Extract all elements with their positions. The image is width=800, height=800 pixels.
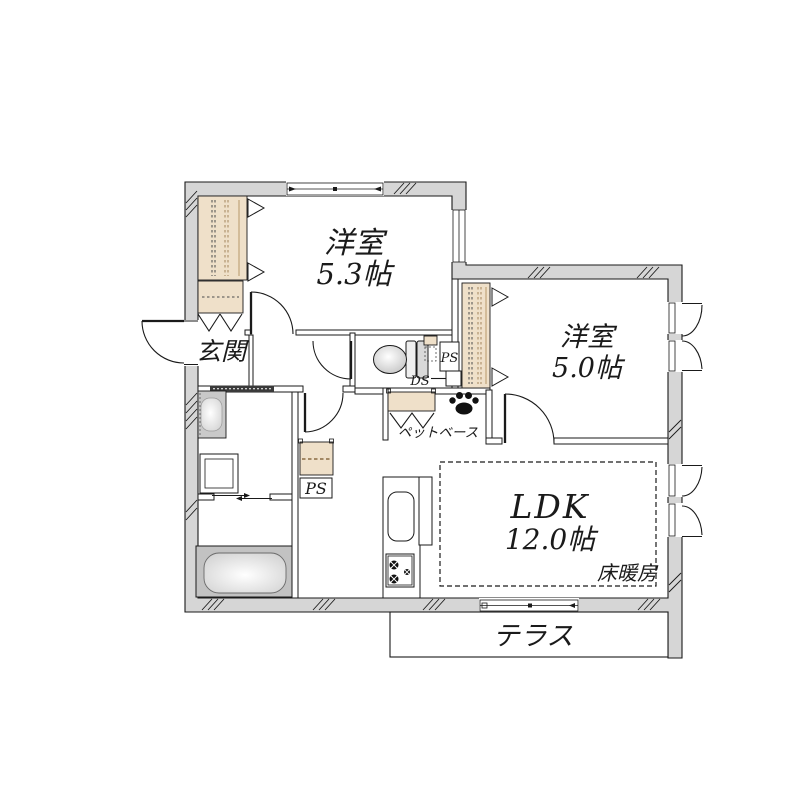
room2-size: 5.0帖	[552, 353, 626, 384]
floor-heating-label: 床暖房	[597, 561, 659, 585]
casement-window-3	[667, 464, 702, 497]
bathtub-icon	[196, 546, 292, 597]
room2-door	[505, 394, 554, 443]
closet-room2	[462, 283, 508, 388]
window-top-room1	[286, 181, 384, 196]
entrance-label: 玄関	[196, 337, 249, 366]
shoe-cabinet	[198, 281, 243, 331]
window-side-room1	[451, 210, 467, 262]
ldk-size: 12.0帖	[505, 523, 599, 556]
toilet-door	[313, 341, 351, 379]
vanity-icon	[198, 391, 226, 438]
entrance-door	[142, 321, 184, 363]
casement-window-4	[667, 503, 702, 537]
ds-label: DS	[409, 374, 429, 389]
ps-toilet-label: PS	[440, 351, 459, 366]
terrace-label: テラス	[493, 621, 573, 652]
casement-window-1	[667, 302, 702, 336]
floor-plan-drawing: 洋室 5.3帖 洋室 5.0帖 LDK 12.0帖 床暖房 玄関 テラス ペット…	[0, 0, 800, 800]
kitchen-counter	[383, 477, 432, 598]
floor-plan-page: 洋室 5.3帖 洋室 5.0帖 LDK 12.0帖 床暖房 玄関 テラス ペット…	[0, 0, 800, 800]
room2-label: 洋室	[560, 322, 618, 353]
casement-window-2	[667, 340, 702, 372]
room1-door	[251, 292, 293, 334]
closet-room1	[198, 196, 264, 281]
ps-hall-label: PS	[304, 479, 327, 498]
window-terrace	[479, 598, 579, 613]
sliding-door-bath	[212, 493, 272, 501]
pet-base-storage	[387, 389, 436, 428]
washing-machine-icon	[200, 454, 238, 493]
pet-base-label: ペットベース	[398, 425, 479, 441]
ldk-label: LDK	[509, 487, 589, 526]
ds-box	[431, 371, 461, 386]
sink-icon	[388, 492, 414, 541]
room1-label: 洋室	[324, 226, 388, 261]
toilet-icon	[374, 336, 438, 378]
washroom-door	[305, 393, 343, 432]
room1-size: 5.3帖	[316, 257, 395, 291]
paw-icon	[449, 392, 478, 415]
stove-icon	[386, 554, 414, 587]
